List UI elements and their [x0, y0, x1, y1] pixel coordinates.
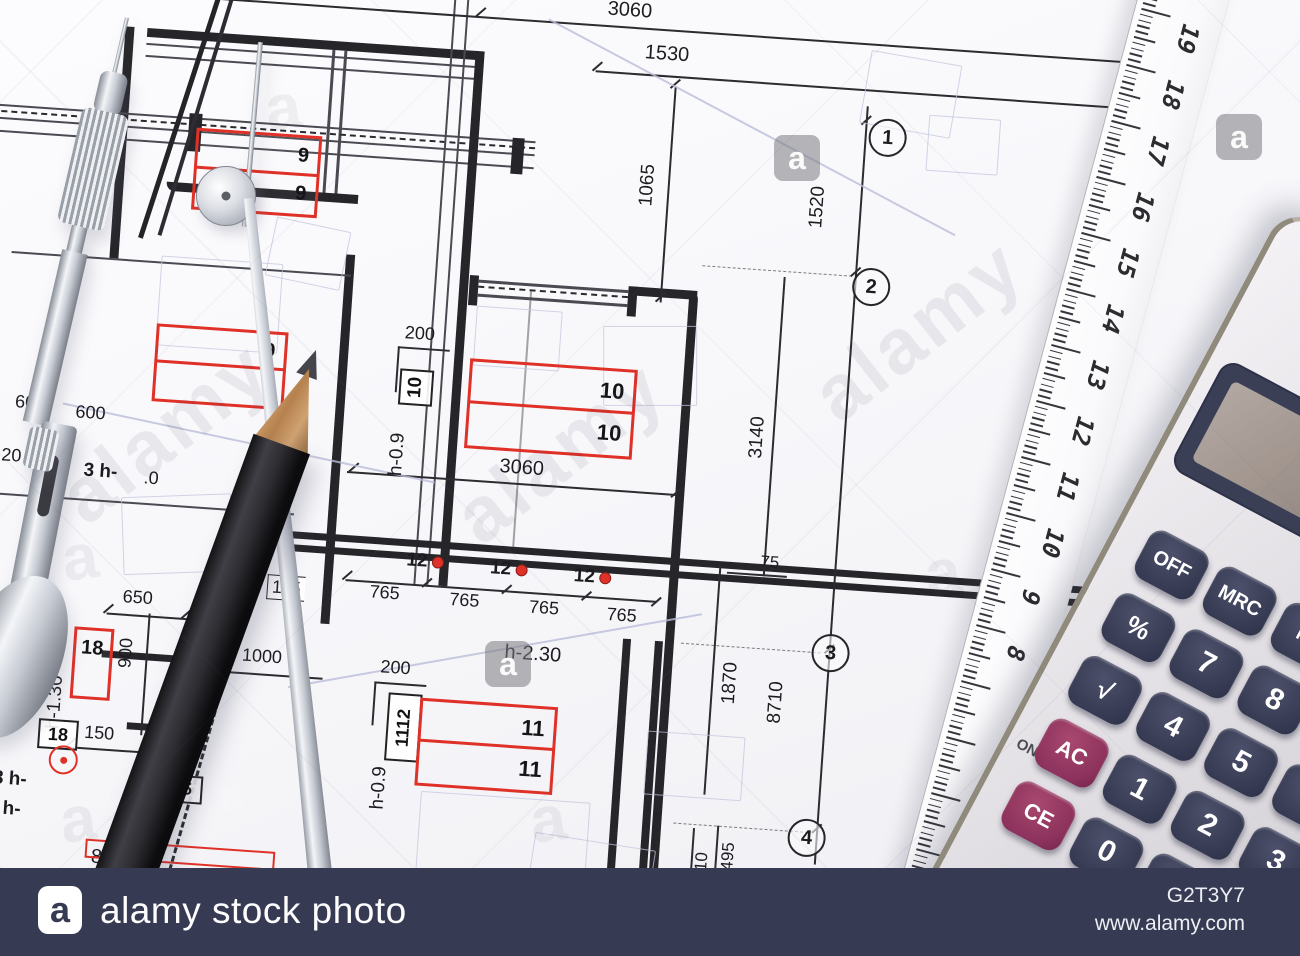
stock-photo: 132530601530106515203140200h-0.930601157… — [0, 0, 1300, 956]
ruler-tick — [955, 703, 968, 708]
ruler-tick — [1086, 215, 1099, 220]
ruler-tick — [951, 719, 964, 724]
dim-1000: 1000 — [241, 645, 282, 669]
ruler-tick — [981, 607, 994, 612]
ruler-tick — [1122, 81, 1135, 86]
ruler-tick — [1107, 137, 1120, 142]
ruler-tick — [921, 831, 934, 836]
ruler-tick — [1017, 473, 1030, 478]
dim-10-bottom: 10 — [691, 851, 712, 868]
ruler-number: 11 — [1051, 467, 1084, 507]
dimension-line — [69, 746, 145, 753]
ruler-number: 9 — [1016, 584, 1046, 610]
ruler-tick — [1123, 75, 1136, 80]
ruler-tick — [1054, 333, 1067, 338]
dim-75: 75 — [760, 552, 780, 573]
calc-button-1: 1 — [1098, 750, 1182, 829]
ruler-tick — [1045, 366, 1058, 371]
ruler-tick — [958, 691, 971, 696]
pencil-lead-tip — [296, 346, 326, 380]
ruler-tick — [1005, 518, 1018, 523]
ruler-tick — [987, 585, 1000, 590]
ruler-tick — [979, 613, 992, 618]
ruler-tick — [966, 663, 979, 668]
ruler-tick — [1144, 0, 1157, 2]
ruler-number: 13 — [1081, 355, 1114, 395]
ruler-tick — [1053, 338, 1066, 343]
ruler-tick — [1047, 361, 1060, 366]
ruler-tick — [1099, 165, 1112, 170]
furniture-outline — [643, 731, 745, 802]
ruler-tick — [1002, 529, 1015, 534]
ruler-tick — [913, 859, 926, 864]
alamy-url: www.alamy.com — [1095, 912, 1245, 936]
ruler-tick — [1080, 238, 1093, 243]
ruler-tick — [978, 618, 991, 623]
ruler-tick — [1129, 53, 1142, 58]
tag-12-1: 12 — [406, 549, 429, 572]
ruler-tick — [972, 641, 985, 646]
dim-200-upper: 200 — [404, 322, 435, 345]
calc-button-0: 0 — [1065, 813, 1149, 868]
ruler-number: 10 — [1036, 523, 1069, 563]
ruler-tick — [945, 742, 958, 747]
ruler-tick — [948, 731, 961, 736]
calc-button-4: 4 — [1131, 687, 1215, 766]
ruler-tick — [1069, 277, 1082, 282]
ruler-number: 12 — [1066, 411, 1099, 451]
ruler-tick — [1113, 114, 1126, 119]
red-tag-18: 18 — [70, 626, 115, 701]
ruler-tick — [1035, 406, 1048, 411]
ruler-tick — [993, 562, 1006, 567]
ruler-tick — [1078, 243, 1091, 248]
ruler-number: 15 — [1111, 243, 1144, 283]
dim-1065: 1065 — [635, 163, 660, 207]
ruler-number: 18 — [1156, 75, 1189, 115]
ruler-tick — [1042, 378, 1055, 383]
ruler-tick — [982, 602, 995, 607]
ruler-tick — [1095, 182, 1108, 187]
compass-needle — [111, 17, 129, 80]
ruler-number: 14 — [1096, 299, 1129, 339]
ruler-tick — [1072, 266, 1085, 271]
ruler-tick — [1011, 495, 1024, 500]
dim-650: 650 — [122, 586, 153, 609]
ruler-tick — [1063, 299, 1076, 304]
dim-765-4: 765 — [606, 604, 637, 627]
ruler-tick — [975, 630, 988, 635]
calc-button-ac: AC — [1030, 714, 1114, 793]
ruler-tick — [1137, 25, 1150, 30]
ruler-tick — [1009, 501, 1022, 506]
ruler-tick — [963, 675, 976, 680]
calculator-lcd — [1191, 380, 1300, 522]
dim-765-3: 765 — [528, 596, 559, 619]
ruler-tick — [1101, 159, 1114, 164]
ruler-tick — [925, 815, 938, 820]
label-3h-lower: 3 h- — [0, 767, 27, 791]
dim-200-lower: 200 — [380, 656, 411, 679]
ruler-tick — [1020, 462, 1033, 467]
ruler-tick — [990, 574, 1003, 579]
ruler-number: 8 — [1001, 640, 1031, 666]
ruler-tick — [1132, 41, 1145, 46]
ruler-tick — [1018, 467, 1031, 472]
dim-765-2: 765 — [449, 589, 480, 612]
calc-button-ce: CE — [997, 776, 1081, 855]
ruler-tick — [1114, 109, 1127, 114]
ruler-tick — [1077, 249, 1090, 254]
ruler-tick — [997, 546, 1010, 551]
dim-600-b: 600 — [75, 401, 106, 424]
watermark-a-box: a — [485, 641, 531, 687]
dim-150: 150 — [83, 722, 114, 745]
ruler-tick — [942, 753, 955, 758]
watermark-a-box: a — [774, 135, 820, 181]
ruler-number: 19 — [1171, 19, 1204, 59]
ruler-tick — [915, 854, 928, 859]
label-h09-lower: h-0.9 — [367, 766, 392, 811]
dim-3060-top: 3060 — [607, 0, 653, 24]
ruler-tick — [1056, 327, 1069, 332]
calc-button-3: 3 — [1234, 822, 1300, 868]
alamy-logo: a — [38, 886, 82, 934]
dimension-line — [107, 613, 187, 621]
ruler-tick — [927, 809, 940, 814]
ruler-tick — [1033, 411, 1046, 416]
ruler-tick — [1116, 103, 1129, 108]
dimension-line — [660, 87, 677, 303]
tag-10-box: 10 — [398, 368, 434, 406]
alamy-footer-bar: a alamy stock photo G2T3Y7 www.alamy.com — [0, 868, 1300, 956]
ruler-tick — [928, 803, 941, 808]
red-dot — [599, 572, 612, 585]
ruler-tick — [1071, 271, 1084, 276]
wall-line — [334, 51, 347, 196]
label-2h: 2 h- — [0, 797, 21, 821]
ruler-tick — [1003, 523, 1016, 528]
ruler-number: 20 — [1186, 0, 1219, 3]
ruler-tick — [967, 658, 980, 663]
ruler-tick — [994, 557, 1007, 562]
ruler-tick — [1102, 153, 1115, 158]
ruler-tick — [1038, 394, 1051, 399]
label-h09-upper: h-0.9 — [385, 432, 410, 477]
ruler-tick — [1041, 383, 1054, 388]
alamy-brand-text: alamy stock photo — [100, 890, 407, 932]
ruler-tick — [1110, 125, 1123, 130]
calc-button-√: √ — [1063, 651, 1147, 730]
ruler-tick — [1083, 226, 1096, 231]
ruler-tick — [960, 686, 973, 691]
red-dot — [515, 564, 528, 577]
ruler-tick — [1098, 170, 1111, 175]
calc-button-mrc: MRC — [1198, 562, 1282, 641]
ruler-tick — [922, 826, 935, 831]
ruler-tick — [918, 843, 931, 848]
wall-segment — [602, 639, 631, 868]
ruler-tick — [1075, 254, 1088, 259]
ruler-tick — [949, 725, 962, 730]
ruler-tick — [964, 669, 977, 674]
ruler-tick — [957, 697, 970, 702]
ruler-tick — [1024, 445, 1037, 450]
ruler-tick — [1050, 350, 1063, 355]
dim-1520: 1520 — [805, 185, 830, 229]
ruler-tick — [1143, 2, 1156, 7]
wall-line — [322, 50, 335, 195]
dim-3140: 3140 — [745, 416, 770, 460]
ruler-tick — [1105, 142, 1118, 147]
ruler-tick — [1128, 58, 1141, 63]
ruler-tick — [1023, 450, 1036, 455]
dim-495: 495 — [717, 842, 739, 868]
ruler-tick — [936, 775, 949, 780]
dim-20: 20 — [1, 444, 22, 466]
ruler-tick — [943, 747, 956, 752]
dim-900: 900 — [114, 637, 137, 668]
window-cap — [510, 138, 524, 175]
ruler-tick — [1000, 534, 1013, 539]
ruler-tick — [1026, 439, 1039, 444]
dimension-line — [371, 681, 376, 725]
ruler-tick — [1012, 490, 1025, 495]
ruler-tick — [1008, 506, 1021, 511]
ruler-tick — [1092, 193, 1105, 198]
ruler-tick — [1125, 69, 1138, 74]
ruler-tick — [985, 590, 998, 595]
ruler-tick — [1057, 322, 1070, 327]
ruler-tick — [973, 635, 986, 640]
ruler-tick — [1120, 86, 1133, 91]
dimension-line — [140, 613, 151, 735]
ruler-number: 16 — [1126, 187, 1159, 227]
photo-area: 132530601530106515203140200h-0.930601157… — [0, 0, 1300, 868]
ruler-tick — [1138, 19, 1151, 24]
dim-1870: 1870 — [718, 661, 743, 705]
axis-dash — [702, 265, 852, 276]
image-id: G2T3Y7 — [1167, 884, 1245, 908]
dim-765-1: 765 — [369, 581, 400, 604]
tag-12-3: 12 — [573, 565, 596, 588]
ruler-tick — [1108, 131, 1121, 136]
calc-button-off: OFF — [1130, 526, 1214, 605]
ruler-tick — [940, 759, 953, 764]
ruler-tick — [1117, 97, 1130, 102]
dimension-line — [374, 681, 426, 687]
ruler-tick — [934, 781, 947, 786]
dim-1530: 1530 — [644, 41, 690, 67]
ruler-tick — [1039, 389, 1052, 394]
ruler-tick — [1032, 417, 1045, 422]
calculator-display — [1168, 357, 1300, 545]
calc-button-7: 7 — [1165, 624, 1249, 703]
ruler-tick — [1140, 13, 1153, 18]
ruler-tick — [1015, 478, 1028, 483]
ruler-tick — [937, 770, 950, 775]
ruler-tick — [1027, 434, 1040, 439]
calc-button-8: 8 — [1233, 661, 1300, 740]
ruler-tick — [1093, 187, 1106, 192]
ruler-tick — [1030, 422, 1043, 427]
ruler-tick — [1131, 47, 1144, 52]
calc-button-2: 2 — [1166, 786, 1250, 865]
ruler-tick — [1087, 210, 1100, 215]
axis-dash — [681, 643, 821, 654]
ruler-tick — [1084, 221, 1097, 226]
ruler-tick — [988, 579, 1001, 584]
axis-bubble-3: 3 — [810, 633, 851, 674]
ruler-tick — [1060, 310, 1073, 315]
calc-button-%: % — [1097, 588, 1181, 667]
ruler-tick — [952, 714, 965, 719]
dim-8710: 8710 — [764, 681, 789, 725]
ruler-tick — [996, 551, 1009, 556]
red-tag-11: 1111 — [414, 698, 558, 795]
ruler-tick — [1068, 282, 1081, 287]
ruler-tick — [1065, 294, 1078, 299]
calc-button-5: 5 — [1199, 723, 1283, 802]
ruler-tick — [1090, 198, 1103, 203]
ruler-tick — [933, 787, 946, 792]
watermark-a-box: a — [1216, 114, 1262, 160]
ruler-tick — [1062, 305, 1075, 310]
window-jamb — [468, 275, 479, 306]
wall-segment — [320, 254, 355, 624]
ruler-number: 17 — [1141, 131, 1174, 171]
ruler-tick — [970, 646, 983, 651]
ruler-tick — [919, 837, 932, 842]
ruler-tick — [930, 798, 943, 803]
furniture-outline — [925, 115, 1001, 176]
ruler-tick — [1048, 355, 1061, 360]
ruler-tick — [1135, 30, 1148, 35]
